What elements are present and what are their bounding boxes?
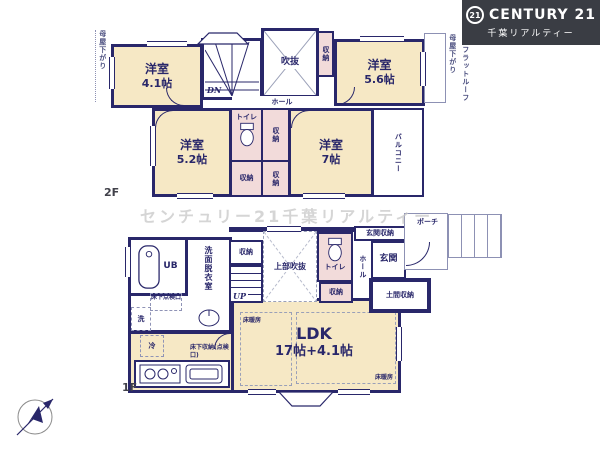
void-label: 吹抜 [280, 57, 300, 68]
room-2f-bedroom-4-1: 洋室 4.1帖 [111, 44, 203, 108]
closet-label: 収納 [271, 127, 280, 143]
north-arrow-icon [12, 392, 58, 442]
window [125, 247, 131, 277]
closet-label: 収納 [239, 248, 253, 257]
window [420, 52, 426, 86]
washer-space: 洗 [131, 307, 151, 331]
logo-subtitle: 千葉リアルティー [487, 26, 574, 39]
window [150, 126, 156, 166]
dirt-floor-storage-1f: 土間収納 [369, 278, 431, 313]
bay-window-bottom-icon [278, 391, 334, 407]
window [303, 193, 345, 199]
window [396, 327, 402, 361]
room-name: 洋室 [319, 138, 343, 153]
dirt-floor-storage-label: 土間収納 [386, 291, 414, 300]
entrance-label: 玄関 [379, 254, 397, 265]
toilet-icon [238, 122, 256, 148]
ldk-name: LDK [262, 324, 366, 344]
flat-roof-area [424, 33, 446, 103]
unit-bath-label: UB [163, 261, 177, 272]
eaves-note-right: 母屋下がり [448, 34, 457, 92]
closet-label: 収納 [329, 288, 343, 297]
ldk-labels: LDK 17帖+4.1帖 [262, 324, 366, 360]
room-size: 5.2帖 [177, 153, 208, 167]
ldk-size: 17帖+4.1帖 [262, 344, 366, 360]
upper-void-1f: 上部吹抜 [263, 231, 317, 302]
closet-label: 収納 [240, 174, 254, 183]
floor-label-1f: 1F [122, 381, 137, 395]
window [360, 36, 404, 42]
stove-icon [139, 364, 181, 384]
bathtub-icon [138, 245, 160, 289]
exterior-steps [448, 214, 502, 258]
sink-icon [196, 308, 222, 328]
upper-void-label: 上部吹抜 [273, 262, 307, 272]
room-name: 洋室 [180, 138, 204, 153]
room-name: 洋室 [145, 62, 169, 77]
closet-2f-a: 収納 [230, 160, 263, 197]
floor-heating-label: 床暖房 [243, 315, 261, 324]
toilet-label: トイレ [236, 113, 257, 122]
closet-label: 収納 [271, 171, 280, 187]
closet-2f-c: 収納 [261, 160, 290, 197]
balcony-label: バルコニー [394, 133, 403, 173]
century21-logo: 21 CENTURY 21 千葉リアルティー [462, 0, 600, 45]
staircase-2f: DN [201, 38, 263, 100]
entrance-storage-label: 玄関収納 [366, 229, 394, 238]
logo-brand: CENTURY 21 [489, 7, 596, 23]
century21-badge-icon: 21 [466, 6, 484, 24]
room-size: 5.6帖 [364, 73, 395, 87]
flat-roof-label: フラットルーフ [461, 46, 470, 130]
hall-label: ホール [272, 98, 293, 107]
window [338, 389, 370, 395]
underfloor-hatch: 床下点検口 [150, 293, 182, 311]
toilet-label: トイレ [325, 263, 346, 272]
closet-label: 収納 [321, 46, 330, 62]
toilet-1f: トイレ [317, 232, 353, 282]
entrance-1f: 玄関 [371, 241, 406, 279]
kitchen-counter [134, 360, 230, 388]
bay-window-top-icon [197, 32, 249, 45]
closet-1f-toiletside: 収納 [319, 282, 353, 303]
watermark-text: センチュリー21千葉リアルティー [140, 203, 433, 227]
logo-row: 21 CENTURY 21 [466, 6, 596, 24]
window [109, 57, 115, 89]
closet-1f-stairside: 収納 [229, 240, 263, 265]
closet-2f-top: 収納 [317, 31, 334, 77]
hall-2f: ホール [232, 96, 332, 108]
stairs-down-label: DN [207, 85, 221, 95]
void-2f: 吹抜 [261, 28, 319, 98]
unit-bath-1f: UB [128, 237, 188, 296]
floor-label-2f: 2F [104, 186, 119, 200]
window [177, 193, 213, 199]
entrance-storage-1f: 玄関収納 [354, 226, 406, 241]
toilet-icon [326, 237, 344, 263]
fridge-space: 冷 [140, 335, 164, 357]
kitchen-sink-icon [185, 364, 223, 384]
window [248, 389, 276, 395]
stairs-up-label: UP [231, 291, 248, 301]
room-name: 洋室 [367, 58, 391, 73]
hall-label: ホール [358, 255, 367, 279]
room-size: 7帖 [322, 153, 341, 167]
window [147, 41, 187, 47]
floor-heating-label: 床暖房 [375, 372, 393, 381]
eaves-note-left: 母屋下がり [95, 30, 107, 102]
balcony-2f: バルコニー [372, 108, 424, 197]
closet-2f-b: 収納 [261, 108, 290, 162]
toilet-2f: トイレ [230, 108, 263, 162]
